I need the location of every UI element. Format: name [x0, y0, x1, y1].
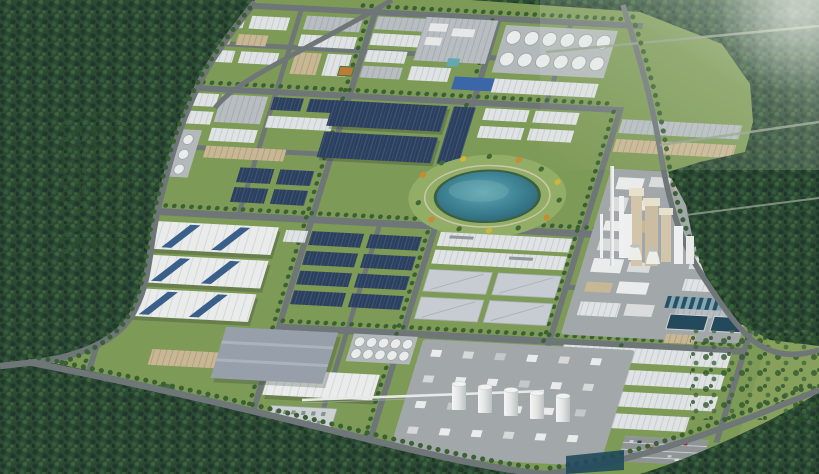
plant-hall	[577, 301, 621, 317]
navy-roof-hall	[354, 274, 410, 291]
navy-roof-hall	[290, 290, 346, 307]
navy-roof-hall	[270, 189, 308, 206]
large-gray-warehouse	[211, 327, 339, 384]
factory-hall	[364, 50, 408, 64]
clarifier-pool	[666, 314, 708, 331]
navy-roof-hall	[236, 167, 274, 184]
plant-building	[584, 282, 613, 293]
navy-roof-hall	[302, 251, 358, 268]
chimney-shade	[610, 166, 611, 266]
cooling-tower-rim	[630, 244, 640, 248]
factory-hall	[248, 16, 290, 31]
chimney	[619, 196, 624, 258]
factory-hall	[235, 34, 268, 46]
factory-hall	[359, 66, 403, 80]
factory-hall	[208, 128, 258, 143]
plant-building	[590, 258, 624, 273]
small-pool	[446, 58, 460, 67]
navy-roof-hall	[296, 271, 352, 288]
preheater-tower-cap	[643, 198, 660, 206]
rooftop-unit	[424, 37, 442, 46]
aerial-scene	[0, 0, 819, 474]
rooftop-unit	[428, 23, 448, 32]
cooling-tower-rim	[648, 248, 658, 252]
factory-hall	[283, 230, 309, 243]
navy-roof-hall	[230, 187, 268, 204]
preheater-tower	[661, 212, 671, 262]
scattered-trees-left	[60, 110, 130, 260]
navy-roof-hall	[348, 293, 404, 310]
factory-hall	[482, 108, 530, 122]
chimney	[600, 214, 603, 258]
navy-roof-hall	[366, 234, 422, 251]
preheater-tower-cap	[659, 208, 673, 215]
navy-roof-hall	[270, 97, 304, 111]
sports-court	[338, 66, 355, 76]
plant-building	[623, 304, 655, 317]
factory-hall	[407, 66, 451, 82]
navy-roof-hall	[360, 254, 416, 271]
preheater-tower-cap	[629, 188, 644, 196]
navy-roof-hall	[308, 231, 364, 248]
plant-building	[616, 281, 650, 294]
rooftop-unit	[451, 28, 475, 37]
silo-tower	[686, 236, 694, 264]
silo-tower	[674, 226, 683, 264]
navy-roof-hall	[276, 169, 314, 186]
factory-hall	[477, 126, 525, 140]
aerial-render-industrial-park	[0, 0, 819, 474]
